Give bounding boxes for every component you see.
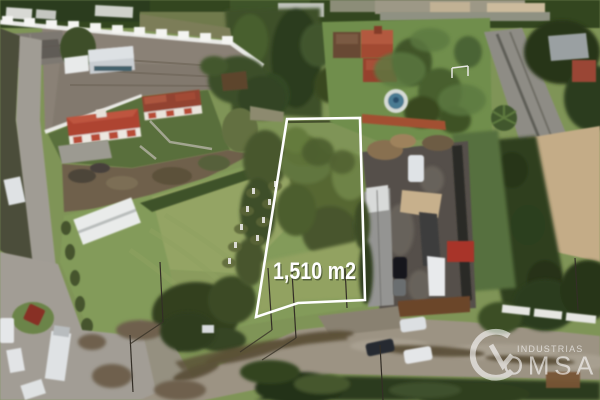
svg-text:1,510 m2: 1,510 m2 [273, 258, 356, 285]
svg-text:OMSA: OMSA [503, 351, 598, 381]
